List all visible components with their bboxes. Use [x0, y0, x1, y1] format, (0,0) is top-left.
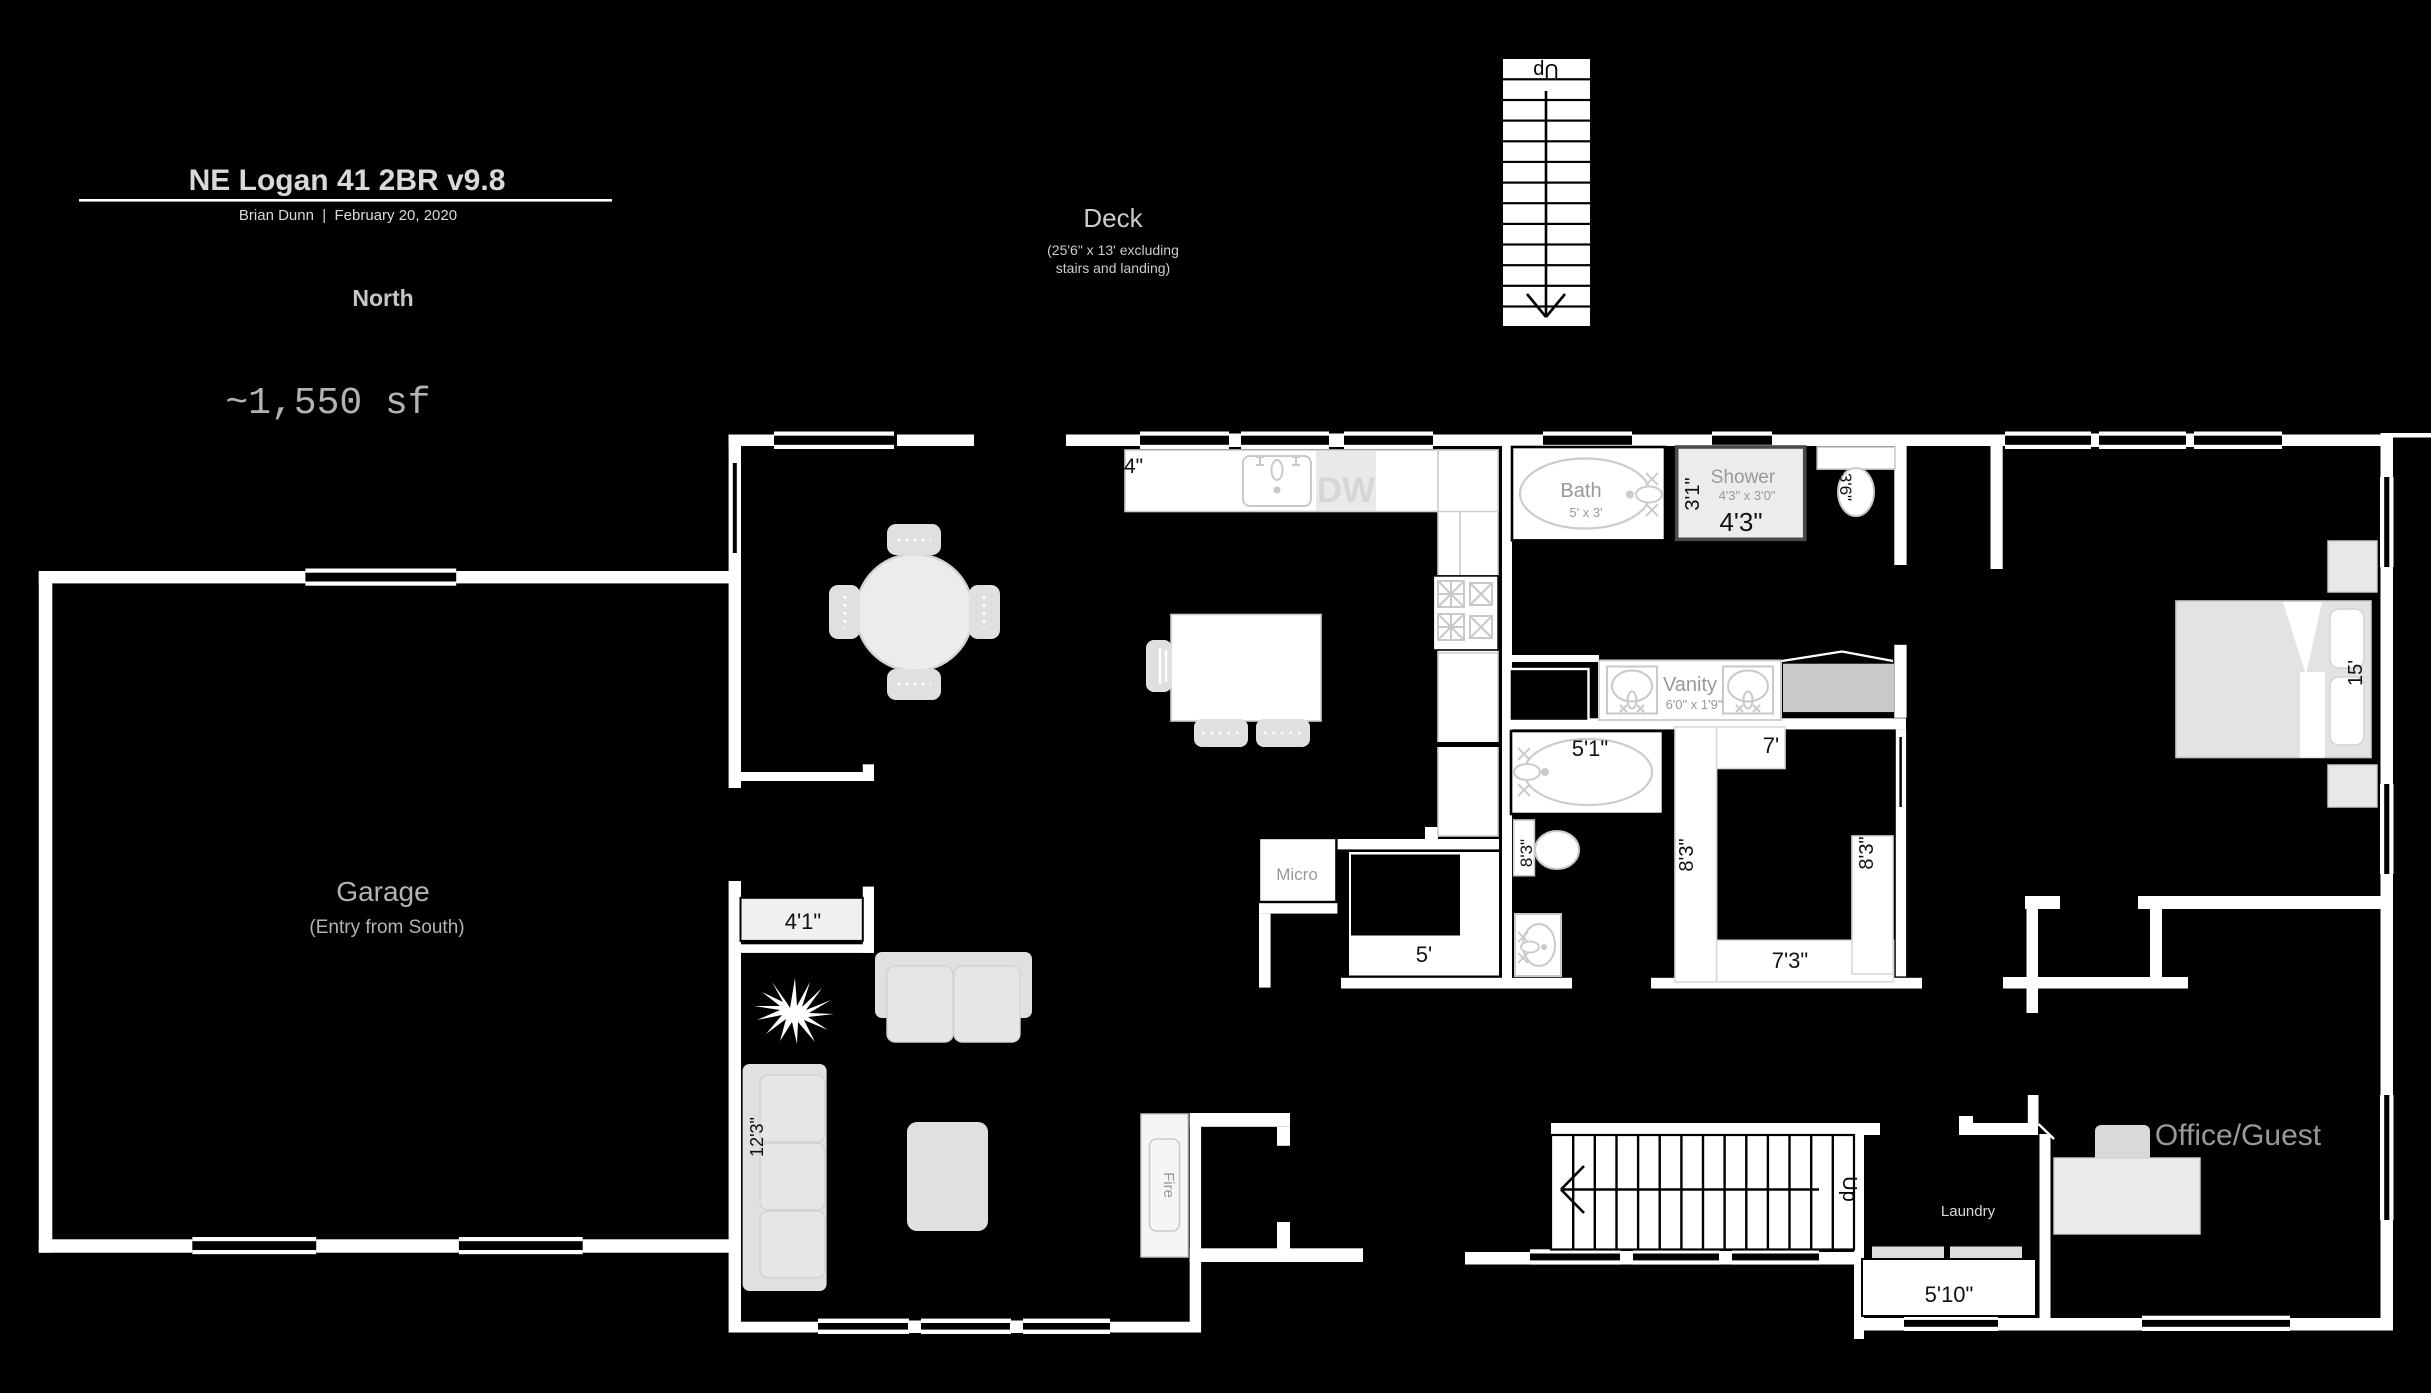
- svg-text:4'3" x 3'0": 4'3" x 3'0": [1719, 488, 1776, 503]
- svg-text:6'0" x 1'9": 6'0" x 1'9": [1666, 697, 1723, 712]
- svg-text:8'3": 8'3": [1517, 839, 1536, 867]
- svg-text:DW: DW: [1317, 471, 1375, 510]
- svg-text:4'3": 4'3": [1719, 507, 1762, 537]
- svg-text:8'3": 8'3": [1676, 838, 1698, 871]
- svg-text:Brian Dunn | February 20, 20: Brian Dunn | February 20, 2020: [239, 207, 457, 224]
- svg-text:Vanity: Vanity: [1663, 674, 1717, 696]
- svg-text:5'1": 5'1": [1572, 736, 1608, 761]
- svg-text:8'3": 8'3": [1856, 836, 1878, 869]
- svg-text:Deck: Deck: [1083, 203, 1143, 233]
- svg-text:Office/Guest: Office/Guest: [2155, 1119, 2322, 1152]
- svg-text:4": 4": [1124, 455, 1143, 478]
- svg-text:3'6": 3'6": [1836, 473, 1855, 501]
- svg-text:stairs and landing): stairs and landing): [1056, 260, 1170, 276]
- svg-text:(Entry from South): (Entry from South): [309, 917, 464, 938]
- svg-text:Shower: Shower: [1711, 467, 1776, 488]
- svg-text:Garage: Garage: [336, 876, 429, 907]
- svg-text:7': 7': [1763, 733, 1779, 758]
- svg-text:5'10": 5'10": [1925, 1282, 1974, 1307]
- svg-text:North: North: [352, 285, 413, 311]
- svg-text:5': 5': [1416, 942, 1432, 967]
- svg-text:Fire: Fire: [1160, 1172, 1177, 1198]
- svg-text:Laundry: Laundry: [1941, 1203, 1996, 1220]
- svg-text:3'1": 3'1": [1682, 477, 1704, 510]
- svg-text:15': 15': [2345, 660, 2367, 686]
- svg-text:Up: Up: [1838, 1176, 1860, 1202]
- svg-text:Bath: Bath: [1560, 480, 1601, 502]
- svg-text:5' x 3': 5' x 3': [1569, 505, 1602, 520]
- svg-text:4'1": 4'1": [785, 909, 821, 934]
- svg-text:7'3": 7'3": [1772, 948, 1808, 973]
- svg-text:(25'6" x 13' excluding: (25'6" x 13' excluding: [1047, 242, 1179, 258]
- svg-text:Up: Up: [1533, 59, 1559, 81]
- svg-text:Micro: Micro: [1276, 865, 1318, 884]
- svg-text:NE Logan 41 2BR v9.8: NE Logan 41 2BR v9.8: [189, 164, 506, 197]
- svg-text:~1,550 sf: ~1,550 sf: [225, 382, 430, 425]
- svg-text:12'3": 12'3": [747, 1117, 767, 1157]
